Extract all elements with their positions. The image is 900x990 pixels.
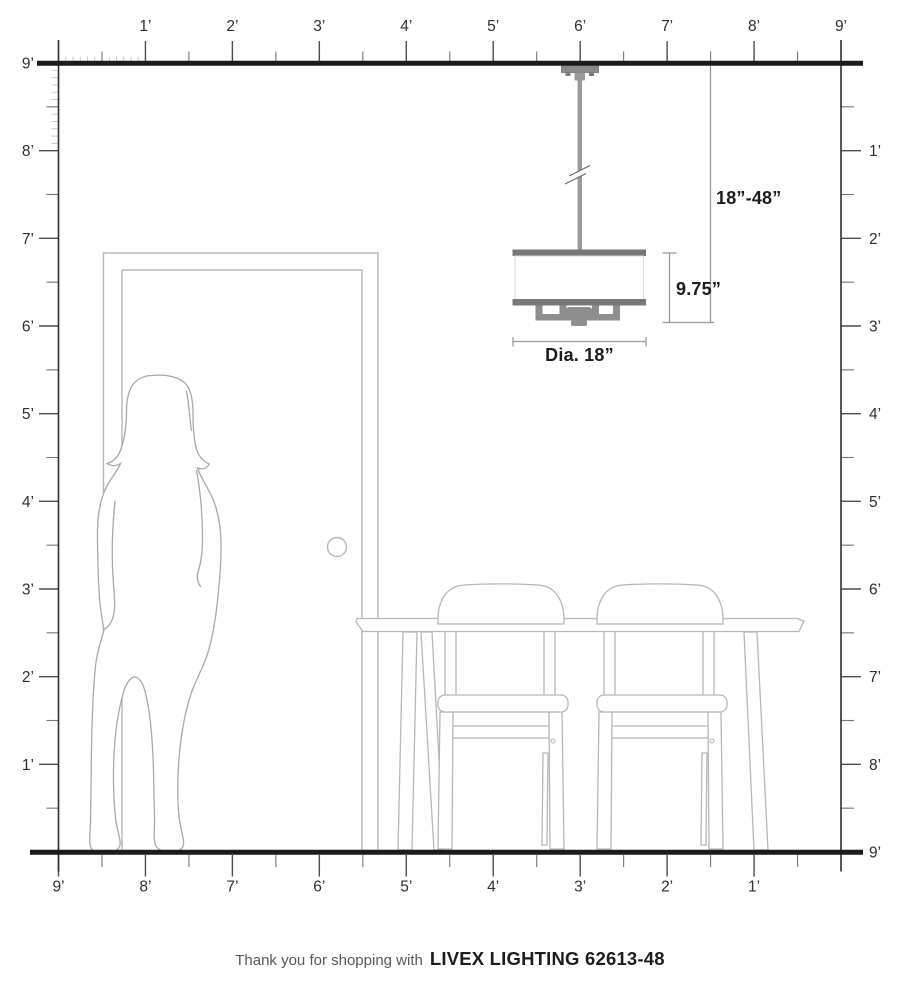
ruler-label: 4’ — [487, 879, 499, 896]
ruler-label: 2’ — [22, 669, 34, 686]
ruler-label: 5’ — [400, 879, 412, 896]
footer-message: Thank you for shopping with LIVEX LIGHTI… — [0, 948, 900, 970]
chair-seat — [597, 695, 727, 712]
rod-break-icon — [565, 166, 590, 185]
drum-body — [515, 256, 644, 300]
canopy-screw-right — [589, 73, 594, 77]
chair-leg — [708, 712, 723, 849]
diameter-dim-label: Dia. 18” — [545, 345, 614, 365]
ruler-label: 7’ — [226, 879, 238, 896]
chair — [438, 614, 568, 849]
ruler-label: 7’ — [661, 18, 673, 35]
drum-shade — [513, 250, 647, 306]
chair-leg — [549, 712, 564, 849]
product-scale-diagram: Dia. 18” 9.75” 18”-48” 1’2’3’4’5’6’7’8’9… — [0, 0, 900, 990]
ruler-label: 5’ — [869, 494, 881, 511]
height-dim-label: 9.75” — [676, 279, 721, 299]
ruler-label: 8’ — [748, 18, 760, 35]
ruler-label: 6’ — [22, 319, 34, 336]
footer-brand-sku: LIVEX LIGHTING 62613-48 — [430, 948, 665, 970]
person-outline — [90, 375, 221, 852]
ruler-label: 8’ — [139, 879, 151, 896]
light-frame — [536, 306, 621, 327]
table-top — [356, 619, 804, 632]
ruler-label: 9’ — [52, 879, 64, 896]
ruler-label: 6’ — [313, 879, 325, 896]
chair — [597, 614, 727, 849]
chair-rail — [611, 726, 709, 738]
chair-seat — [438, 695, 568, 712]
drum-bottom-rim — [513, 299, 647, 306]
ruler-label: 1’ — [869, 143, 881, 160]
bottom-ruler: 9’8’7’6’5’4’3’2’1’ — [52, 855, 797, 896]
ruler-label: 5’ — [487, 18, 499, 35]
table-leg-front-left — [398, 632, 417, 850]
chair-rear-leg — [542, 753, 548, 845]
ruler-label: 4’ — [400, 18, 412, 35]
door-knob — [328, 538, 347, 557]
ruler-label: 9’ — [869, 845, 881, 862]
ruler-label: 6’ — [574, 18, 586, 35]
chair-backrest-cap — [438, 584, 564, 624]
ruler-label: 2’ — [226, 18, 238, 35]
ruler-label: 7’ — [22, 231, 34, 248]
footer-thanks-text: Thank you for shopping with — [235, 952, 423, 969]
canopy-screw-left — [566, 73, 571, 77]
drum-top-rim — [513, 250, 647, 257]
diagram-svg: Dia. 18” 9.75” 18”-48” 1’2’3’4’5’6’7’8’9… — [0, 0, 900, 990]
ruler-label: 8’ — [869, 757, 881, 774]
ruler-label: 9’ — [835, 18, 847, 35]
ruler-label: 5’ — [22, 406, 34, 423]
canopy-collar — [575, 73, 586, 81]
frame-finial — [571, 320, 587, 326]
top-ruler: 1’2’3’4’5’6’7’8’9’ — [66, 18, 847, 63]
ruler-label: 9’ — [22, 56, 34, 73]
ruler-label: 1’ — [22, 757, 34, 774]
chair-rear-leg — [701, 753, 707, 845]
left-ruler: 9’8’7’6’5’4’3’2’1’ — [22, 56, 59, 809]
chair-leg — [438, 712, 453, 849]
table-leg-front-right — [744, 632, 768, 850]
dining-chairs — [438, 614, 727, 849]
ruler-label: 1’ — [748, 879, 760, 896]
ruler-label: 7’ — [869, 669, 881, 686]
ruler-label: 3’ — [313, 18, 325, 35]
hang-rod — [578, 76, 582, 252]
ruler-label: 4’ — [869, 406, 881, 423]
ruler-label: 2’ — [661, 879, 673, 896]
ruler-label: 3’ — [22, 582, 34, 599]
chair-backrest-cap — [597, 584, 723, 624]
chair-rail — [452, 726, 550, 738]
ruler-label: 2’ — [869, 231, 881, 248]
ruler-label: 4’ — [22, 494, 34, 511]
ruler-label: 6’ — [869, 582, 881, 599]
chair-leg — [597, 712, 612, 849]
right-ruler: 1’2’3’4’5’6’7’8’9’ — [841, 107, 881, 862]
person-silhouette — [90, 375, 221, 852]
ruler-label: 3’ — [869, 319, 881, 336]
ruler-label: 8’ — [22, 143, 34, 160]
hang-range-dim-label: 18”-48” — [716, 188, 781, 208]
ruler-label: 3’ — [574, 879, 586, 896]
pendant-light — [513, 64, 647, 326]
ruler-label: 1’ — [139, 18, 151, 35]
frame-center-hub — [566, 307, 592, 320]
